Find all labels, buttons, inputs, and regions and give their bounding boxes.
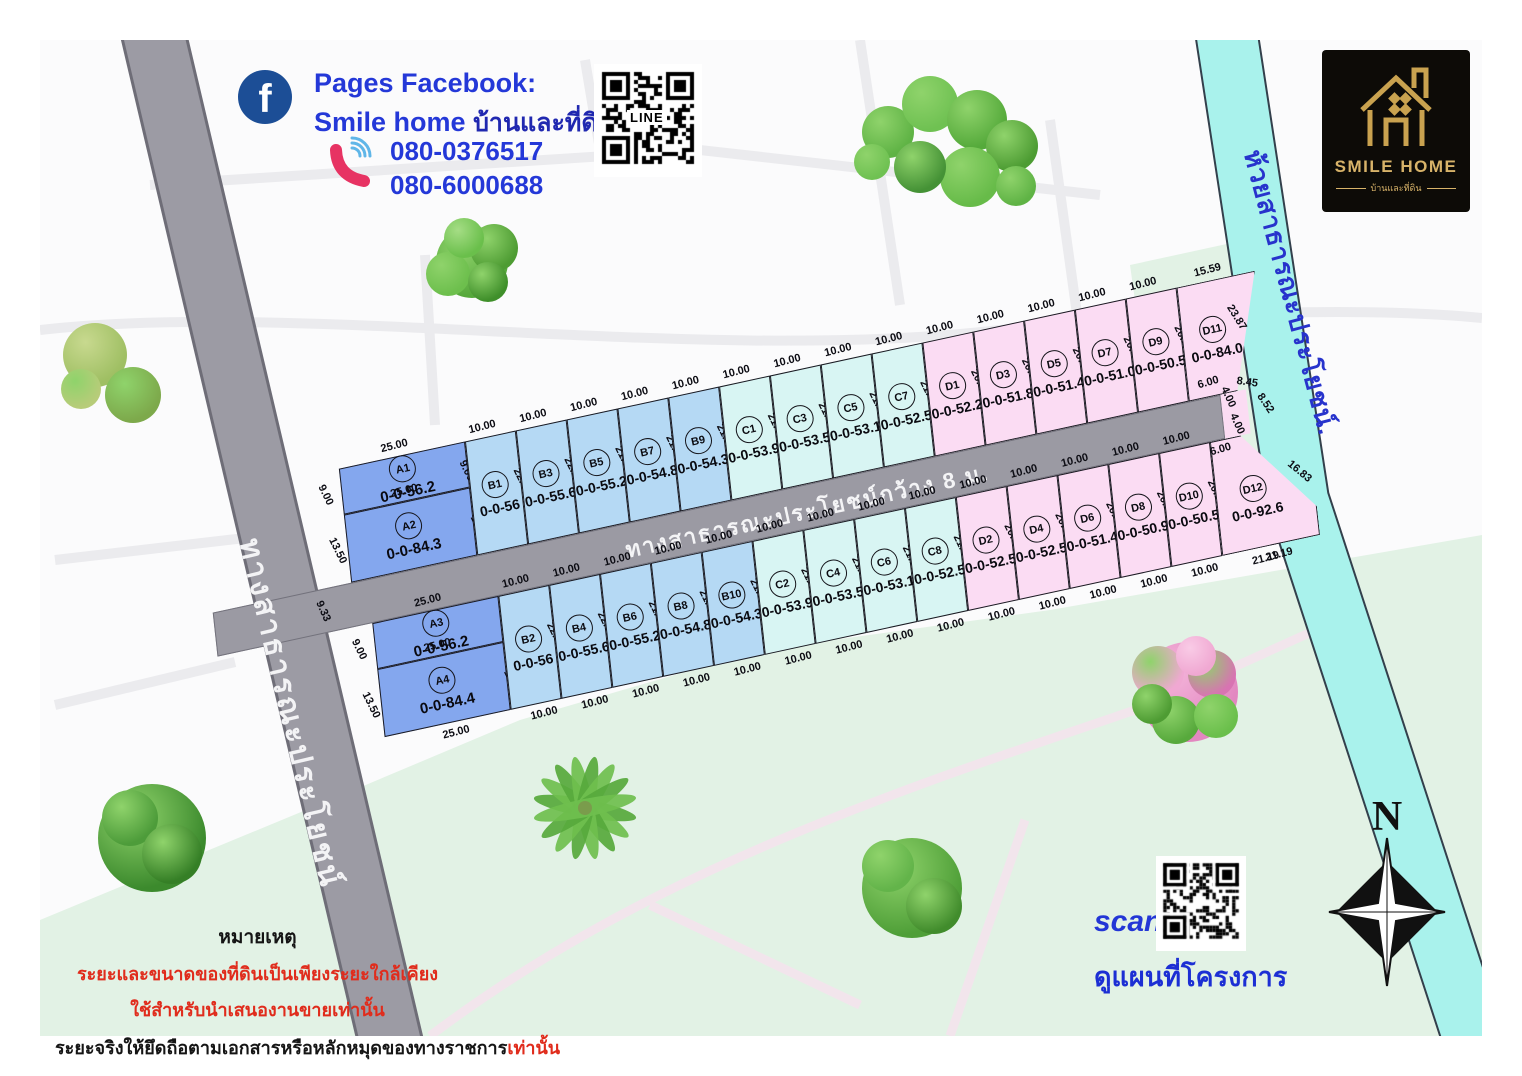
plot-id-badge: C8 (919, 535, 951, 567)
flower-tree-icon (1194, 694, 1238, 738)
plot-area-label: 0-0-54.3 (709, 604, 763, 631)
plot-area-label: 0-0-53.9 (727, 439, 781, 466)
facebook-icon: f (238, 70, 292, 124)
tree-cluster-icon (996, 166, 1036, 206)
plot-id-badge: B10 (715, 579, 747, 611)
plot-area-label: 0-0-52.5 (879, 406, 933, 433)
plot-area-label: 0-0-54.8 (658, 615, 712, 642)
plot-id-badge: D11 (1196, 313, 1228, 345)
plot-area-label: 0-0-53.5 (811, 582, 865, 609)
phone-icon (322, 136, 378, 192)
tree-cluster-icon (854, 144, 890, 180)
plot-id-badge: C7 (885, 380, 917, 412)
notes-heading: หมายเหตุ (55, 922, 460, 952)
logo-house-icon (1348, 58, 1444, 150)
plot-area-label: 0-0-54.3 (676, 450, 730, 477)
plot-area-label: 0-0-52.5 (912, 560, 966, 587)
plot-id-badge: D10 (1173, 480, 1205, 512)
notes-line-2: ใช้สำหรับนำเสนองานขายเท่านั้น (55, 995, 460, 1024)
facebook-pages-label: Pages Facebook: (314, 68, 536, 99)
plot-id-badge: D12 (1237, 472, 1269, 504)
tree-icon (142, 824, 202, 884)
plot-id-badge: C5 (834, 391, 866, 423)
plot-area-label: 0-0-56 (512, 649, 555, 673)
plot-id-badge: B2 (512, 623, 544, 655)
plot-id-badge: D4 (1020, 513, 1052, 545)
plot-area-label: 0-0-84.4 (418, 689, 476, 717)
plot-id-badge: B3 (529, 457, 561, 489)
plot-area-label: 0-0-51.4 (1065, 527, 1119, 554)
line-qr-code: LINE (594, 64, 702, 177)
plot-area-label: 0-0-50.5 (1167, 505, 1221, 532)
plot-id-badge: D6 (1071, 502, 1103, 534)
tree-icon (426, 252, 470, 296)
plot-area-label: 0-0-52.5 (1014, 538, 1068, 565)
dim-label: 8.52 (1254, 392, 1275, 416)
palm-tree-icon (523, 748, 647, 868)
logo-title: SMILE HOME (1322, 157, 1470, 177)
bush-icon (61, 369, 101, 409)
plot-area-label: 0-0-51.8 (981, 384, 1035, 411)
plot-area-label: 0-0-52.2 (930, 395, 984, 422)
plot-area-label: 0-0-53.9 (760, 593, 814, 620)
scan-label: scan (1094, 905, 1162, 939)
plot-area-label: 0-0-84.3 (385, 535, 443, 563)
plot-area-label: 0-0-53.1 (828, 417, 882, 444)
plot-id-badge: D9 (1139, 325, 1171, 357)
tree-cluster-icon (940, 147, 1000, 207)
plot-label: A20-0-84.3 (378, 507, 442, 564)
plot-label: D120-0-92.6 (1224, 469, 1284, 524)
plot-area-label: 0-0-50.9 (1116, 516, 1170, 543)
bush-icon (105, 367, 161, 423)
map-qr-code (1156, 856, 1246, 951)
plot-area-label: 0-0-51.0 (1082, 362, 1136, 389)
plot-area-label: 0-0-56 (478, 495, 521, 519)
plot-id-badge: C3 (784, 402, 816, 434)
page-name-en: Smile home (314, 107, 466, 137)
plot-id-badge: B8 (664, 590, 696, 622)
plot-area-label: 0-0-55.2 (574, 472, 628, 499)
phone-number-2: 080-6000688 (390, 170, 543, 201)
plot-area-label: 0-0-53.5 (777, 428, 831, 455)
plot-id-badge: C1 (733, 413, 765, 445)
plot-id-badge: D8 (1122, 491, 1154, 523)
plot-area-label: 0-0-55.6 (523, 483, 577, 510)
plot-id-badge: B4 (563, 612, 595, 644)
plot-id-badge: D5 (1038, 347, 1070, 379)
dim-label: 8.45 (1236, 376, 1259, 390)
plot-id-badge: B7 (631, 435, 663, 467)
flower-tree-icon (1132, 684, 1172, 724)
notes-block: หมายเหตุ ระยะและขนาดของที่ดินเป็นเพียงระ… (55, 922, 460, 1062)
notes-line-3: ระยะจริงให้ยึดถือตามเอกสารหรือหลักหมุดขอ… (55, 1033, 460, 1062)
plot-id-badge: A1 (386, 453, 418, 485)
notes-line-1: ระยะและขนาดของที่ดินเป็นเพียงระยะใกล้เคี… (55, 959, 460, 988)
plot-id-badge: B9 (682, 424, 714, 456)
line-qr-label: LINE (627, 110, 667, 125)
plot-id-badge: B6 (614, 601, 646, 633)
plot-area-label: 0-0-50.5 (1133, 351, 1187, 378)
plot-area-label: 0-0-84.0 (1190, 339, 1244, 366)
plot-id-badge: A4 (426, 664, 458, 696)
plot-id-badge: A2 (393, 510, 425, 542)
plot-area-label: 0-0-55.2 (607, 626, 661, 653)
compass-north-label: N (1372, 794, 1402, 840)
flower-tree-icon (1176, 636, 1216, 676)
tree-icon (906, 878, 962, 934)
logo-subtitle: บ้านและที่ดิน (1371, 181, 1422, 195)
tree-icon (862, 840, 914, 892)
compass-rose: N (1312, 790, 1462, 995)
plot-id-badge: B1 (479, 468, 511, 500)
plot-id-badge: C6 (868, 546, 900, 578)
plot-id-badge: B5 (580, 446, 612, 478)
plot-area-label: 0-0-54.8 (625, 461, 679, 488)
tree-icon (468, 262, 508, 302)
plot-area-label: 0-0-52.5 (963, 549, 1017, 576)
map-link-label: ดูแผนที่โครงการ (1094, 955, 1287, 998)
smile-home-logo: SMILE HOME บ้านและที่ดิน (1322, 50, 1470, 212)
plot-id-badge: D1 (936, 369, 968, 401)
plot-area-label: 0-0-53.1 (862, 571, 916, 598)
plot-id-badge: D7 (1089, 336, 1121, 368)
plot-id-badge: C2 (766, 568, 798, 600)
phone-number-1: 080-0376517 (390, 136, 543, 167)
plot-area-label: 0-0-92.6 (1230, 498, 1284, 525)
plot-id-badge: D2 (969, 524, 1001, 556)
plot-area-label: 0-0-51.4 (1032, 373, 1086, 400)
plot-id-badge: D3 (987, 358, 1019, 390)
plot-id-badge: C4 (817, 557, 849, 589)
plot-id-badge: A3 (420, 607, 452, 639)
plot-area-label: 0-0-55.6 (557, 637, 611, 664)
plot-label: A40-0-84.4 (412, 661, 476, 718)
tree-icon (444, 218, 484, 258)
tree-cluster-icon (894, 141, 946, 193)
